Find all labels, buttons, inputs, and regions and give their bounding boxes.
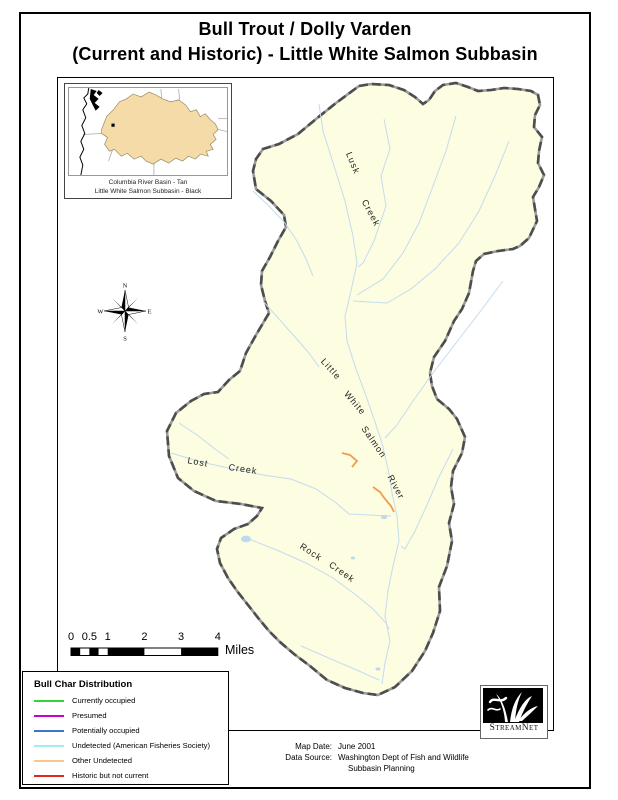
- stream-label: White: [342, 389, 368, 417]
- credits-block: Map Date: June 2001 Data Source: Washing…: [237, 741, 582, 774]
- legend-item-label: Currently occupied: [72, 696, 135, 705]
- map-date-value: June 2001: [332, 741, 375, 752]
- compass-rose: N E S W: [97, 281, 153, 343]
- map-sheet: { "page": { "title_line1": "Bull Trout /…: [0, 0, 618, 800]
- streamnet-logo: StreamNet: [480, 685, 548, 739]
- legend-item: Other Undetected: [34, 753, 228, 768]
- legend-swatch: [34, 775, 64, 777]
- compass-south-label: S: [123, 336, 127, 343]
- legend-items: Currently occupiedPresumedPotentially oc…: [23, 693, 228, 783]
- map-date-label: Map Date:: [237, 741, 332, 752]
- legend-item-label: Other Undetected: [72, 756, 132, 765]
- stream-label: Creek: [228, 462, 258, 476]
- streamnet-logo-canvas: [483, 688, 543, 723]
- puget-sound-island: [97, 90, 103, 96]
- data-source-row2: Subbasin Planning: [237, 763, 582, 774]
- locator-inset-map: [68, 87, 228, 176]
- scalebar-tick-label: 0: [68, 631, 74, 643]
- inset-caption-line1: Columbia River Basin - Tan: [65, 178, 231, 187]
- compass-north-label: N: [123, 283, 128, 290]
- subbasin-marker: [111, 124, 114, 127]
- locator-inset: Columbia River Basin - Tan Little White …: [64, 83, 232, 199]
- stream-label: Little: [319, 356, 343, 381]
- streamnet-logo-art: [483, 688, 543, 723]
- legend: Bull Char Distribution Currently occupie…: [22, 671, 229, 785]
- legend-item: Presumed: [34, 708, 228, 723]
- stream-label: Salmon: [359, 424, 388, 460]
- columbia-basin-polygon: [102, 92, 219, 164]
- legend-swatch: [34, 730, 64, 732]
- data-source-row: Data Source: Washington Dept of Fish and…: [237, 752, 582, 763]
- stream-label: Lost: [187, 455, 209, 468]
- map-date-row: Map Date: June 2001: [237, 741, 582, 752]
- scale-bar-graphic: [63, 646, 223, 658]
- legend-item: Undetected (American Fisheries Society): [34, 738, 228, 753]
- legend-item-label: Undetected (American Fisheries Society): [72, 741, 210, 750]
- compass-star: [104, 290, 146, 332]
- compass-west-label: W: [97, 308, 104, 315]
- legend-item: Historic but not current: [34, 768, 228, 783]
- locator-inset-canvas: [69, 88, 227, 175]
- data-source-value2: Subbasin Planning: [332, 763, 415, 774]
- streamnet-logo-text: StreamNet: [481, 723, 547, 733]
- legend-item: Potentially occupied: [34, 723, 228, 738]
- stream-label: Creek: [327, 560, 357, 585]
- scale-bar-unit: Miles: [225, 643, 254, 657]
- compass-east-label: E: [148, 308, 152, 315]
- inset-caption-line2: Little White Salmon Subbasin - Black: [65, 187, 231, 196]
- scalebar-tick-label: 1: [105, 631, 111, 643]
- map-title-line1: Bull Trout / Dolly Varden: [19, 17, 591, 42]
- coastline: [80, 88, 103, 175]
- scale-bar: 00.51234 Miles: [63, 631, 293, 659]
- legend-title: Bull Char Distribution: [34, 679, 228, 690]
- inset-caption: Columbia River Basin - Tan Little White …: [65, 178, 231, 196]
- scalebar-tick-label: 4: [215, 631, 221, 643]
- stream-label: River: [385, 473, 406, 501]
- legend-swatch: [34, 715, 64, 717]
- legend-swatch: [34, 760, 64, 762]
- data-source-value: Washington Dept of Fish and Wildlife: [332, 752, 469, 763]
- scalebar-tick-label: 3: [178, 631, 184, 643]
- stream-label: Lusk: [344, 150, 362, 175]
- map-title: Bull Trout / Dolly Varden (Current and H…: [19, 17, 591, 67]
- stream-label: Rock: [298, 541, 324, 563]
- legend-item: Currently occupied: [34, 693, 228, 708]
- legend-swatch: [34, 745, 64, 747]
- scalebar-tick-label: 0.5: [82, 631, 97, 643]
- stream-label: Creek: [360, 198, 382, 228]
- legend-item-label: Potentially occupied: [72, 726, 140, 735]
- scalebar-tick-label: 2: [141, 631, 147, 643]
- legend-item-label: Historic but not current: [72, 771, 148, 780]
- legend-item-label: Presumed: [72, 711, 107, 720]
- legend-swatch: [34, 700, 64, 702]
- map-title-line2: (Current and Historic) - Little White Sa…: [19, 42, 591, 67]
- data-source-label: Data Source:: [237, 752, 332, 763]
